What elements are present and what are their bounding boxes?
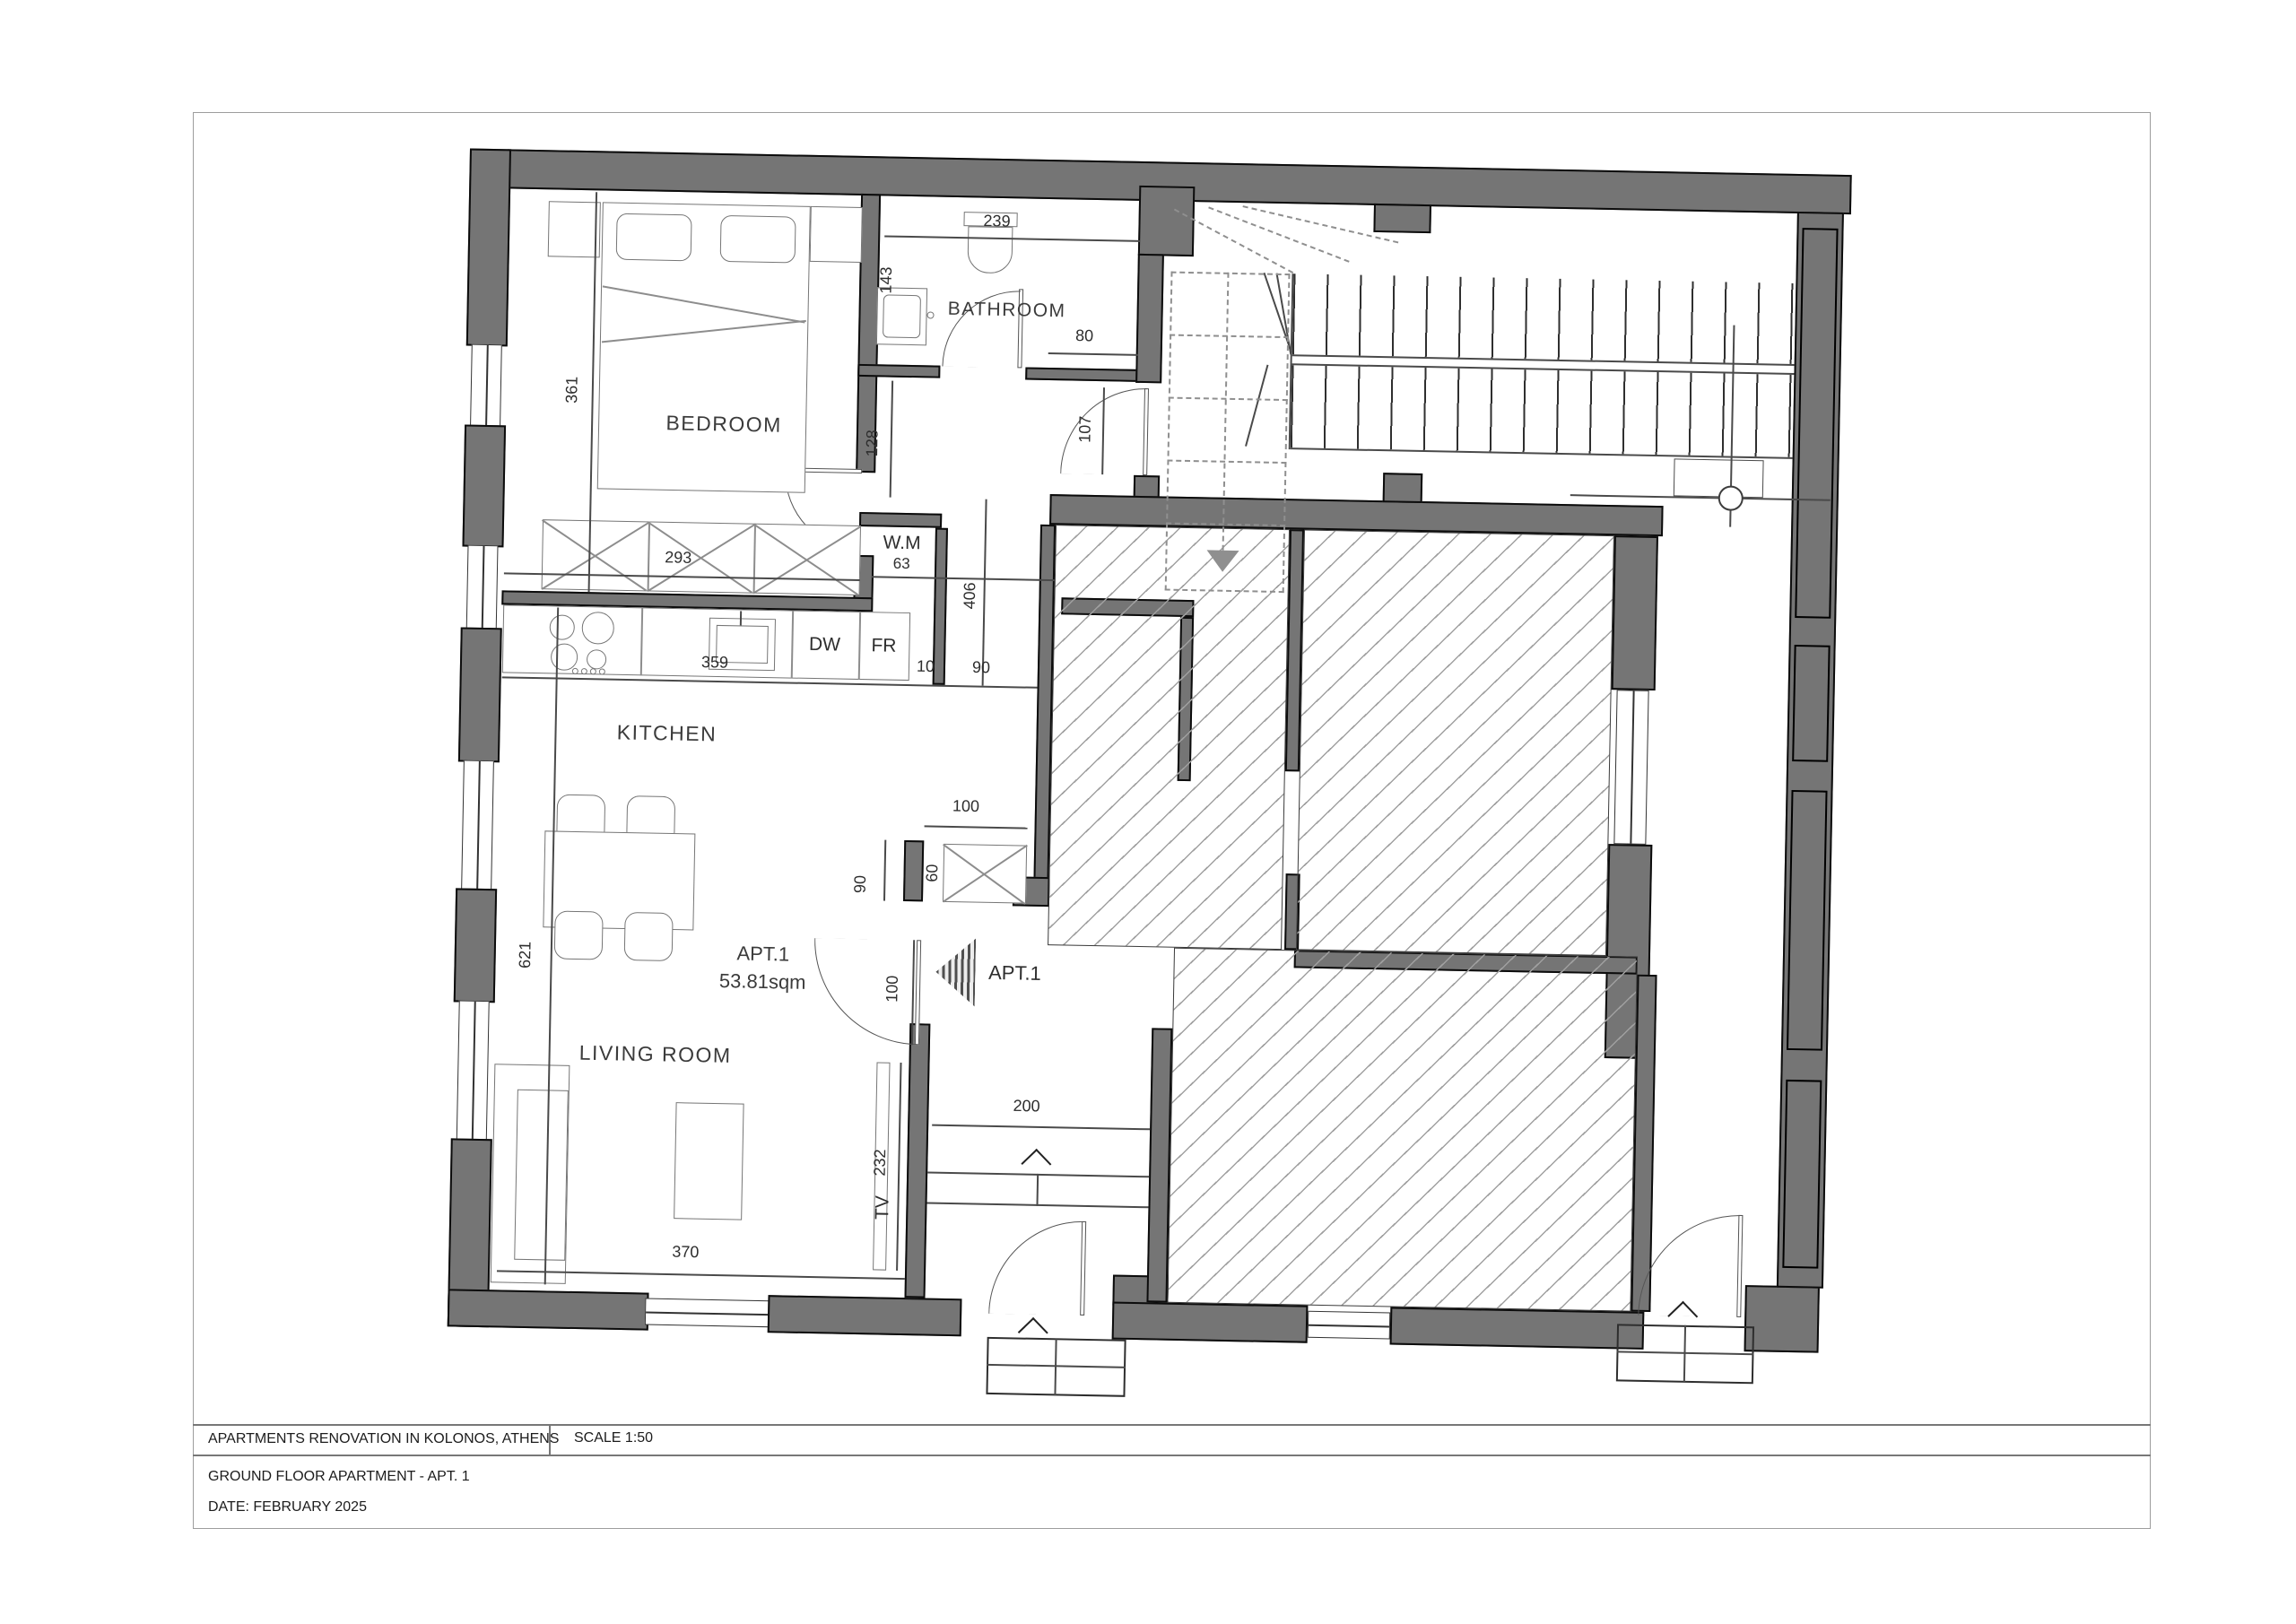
wall-left-segment — [466, 149, 511, 347]
wall-bottom-segment — [448, 1289, 649, 1330]
dimension-line — [932, 1125, 1150, 1130]
dim-kitchen-counter: 359 — [701, 653, 728, 673]
drawing-sheet: DW FR W.M 63 APT.1 — [0, 0, 2296, 1624]
apartment-name: APT.1 — [736, 942, 789, 966]
dim-living-width: 370 — [672, 1243, 699, 1263]
dim-closet-depth: 60 — [923, 864, 942, 881]
wall-wm-right — [933, 528, 948, 685]
wall-bottom-segment — [1390, 1307, 1645, 1349]
pillow — [720, 215, 796, 264]
dim-bathroom-sink: 143 — [876, 266, 896, 293]
dim-stair-door: 107 — [1075, 416, 1095, 443]
cooktop-knob — [581, 668, 587, 674]
dim-tv-wall: 232 — [871, 1149, 891, 1176]
wall-closet-stub — [903, 840, 924, 901]
wall-left-segment — [458, 627, 502, 762]
toilet-bowl — [967, 226, 1013, 274]
dimension-line — [872, 576, 1055, 580]
dim-wardrobe: 293 — [665, 548, 691, 568]
door-arc-entrance — [988, 1220, 1084, 1316]
wall-bathroom-stair — [1135, 254, 1164, 384]
wall-right-panel — [1795, 228, 1838, 619]
hatch-area — [1296, 529, 1614, 956]
sofa-seat — [514, 1090, 569, 1261]
tv-label: TV — [872, 1195, 894, 1220]
dim-kitchen-opening: 90 — [972, 658, 990, 677]
washing-machine-label: W.M — [883, 532, 920, 554]
dim-wall-stub: 10 — [917, 657, 935, 676]
wall-stub — [1134, 475, 1160, 499]
stairs-down-arrow — [1206, 550, 1239, 572]
wall-right-panel — [1787, 790, 1828, 1051]
dimension-line — [896, 1063, 901, 1271]
nightstand — [810, 206, 863, 263]
coffee-table — [674, 1102, 744, 1220]
apartment-area: 53.81sqm — [719, 969, 806, 994]
dim-hall-width: 128 — [863, 430, 883, 456]
room-label-kitchen: KITCHEN — [617, 720, 717, 746]
dim-corridor-opening: 90 — [851, 875, 870, 893]
fridge-label: FR — [871, 635, 896, 657]
stairs-flight-upper — [1292, 274, 1796, 364]
cooktop-knob — [590, 668, 596, 674]
window-living-bottom — [645, 1298, 770, 1328]
dishwasher-label: DW — [809, 634, 840, 656]
room-label-living: LIVING ROOM — [578, 1041, 731, 1068]
dim-vestibule-width: 200 — [1013, 1097, 1039, 1116]
entry-apartment-label: APT.1 — [988, 961, 1041, 986]
dim-living-kitchen-depth: 621 — [516, 942, 535, 968]
dimension-line — [890, 381, 893, 498]
pillow — [616, 213, 692, 262]
stairs-flight-lower — [1291, 365, 1795, 457]
wall-vestibule-left-tv — [904, 1023, 930, 1298]
dim-bathroom-width: 239 — [983, 212, 1010, 231]
threshold-line — [1036, 1174, 1039, 1206]
wall-right-panel — [1792, 645, 1830, 762]
dim-bedroom-depth: 361 — [562, 377, 582, 404]
floor-plan: DW FR W.M 63 APT.1 — [0, 0, 2296, 1624]
wall-bottom-segment — [768, 1295, 962, 1336]
dim-apartment-door: 100 — [883, 976, 902, 1003]
dining-chair — [624, 912, 674, 961]
column-marker-icon — [1718, 485, 1744, 511]
washbasin-tap — [926, 311, 934, 318]
dim-closet-length: 100 — [952, 797, 979, 817]
window-kitchen-left — [461, 760, 494, 891]
scale-label: SCALE 1:50 — [574, 1430, 653, 1446]
entry-arrow-icon — [935, 938, 976, 1007]
window-hatch-bottom — [1308, 1311, 1391, 1340]
dimension-line — [502, 676, 1038, 688]
kitchen-tap — [740, 611, 742, 625]
wall-bathroom-stair-thick — [1138, 186, 1195, 256]
hatch-area — [1167, 948, 1638, 1312]
washbasin-inner — [883, 294, 921, 338]
dimension-line — [883, 840, 886, 901]
dimension-line — [925, 825, 1028, 829]
door-arc-entrance2 — [1638, 1213, 1742, 1317]
dim-corridor-length: 406 — [961, 582, 980, 609]
date-label: DATE: FEBRUARY 2025 — [208, 1499, 367, 1515]
dining-chair — [554, 911, 604, 960]
window-hatch-right — [1613, 690, 1648, 845]
window-left — [466, 545, 499, 630]
window-living-left — [457, 1000, 490, 1141]
wall-left-segment — [454, 888, 497, 1003]
titleblock-line — [193, 1424, 2151, 1426]
wall-bottom-segment — [1112, 1302, 1309, 1343]
wall-bathroom-bottom — [1025, 367, 1137, 381]
wall-hatch-right — [1612, 535, 1658, 690]
window-bedroom-left — [470, 344, 502, 428]
titleblock-line — [193, 1455, 2151, 1456]
wall-pilaster — [1373, 204, 1431, 233]
room-label-bathroom: BATHROOM — [948, 299, 1066, 323]
wall-bottom-right-corner — [1744, 1285, 1820, 1353]
drawing-title: GROUND FLOOR APARTMENT - APT. 1 — [208, 1469, 470, 1485]
wall-bathroom-bottom — [857, 364, 940, 378]
cooktop-knob — [599, 668, 605, 674]
door-arc-apartment — [813, 938, 919, 1045]
wall-wm-top — [859, 512, 942, 528]
room-label-bedroom: BEDROOM — [665, 411, 782, 437]
project-title: APARTMENTS RENOVATION IN KOLONOS, ATHENS — [208, 1431, 559, 1447]
wall-right-panel — [1782, 1080, 1822, 1269]
dimension-line — [1048, 352, 1138, 355]
washing-machine-width: 63 — [893, 555, 910, 573]
nightstand — [548, 201, 601, 257]
wall-pilaster — [1383, 473, 1423, 503]
dim-bathroom-opening: 80 — [1075, 326, 1093, 345]
wall-left-segment — [462, 424, 506, 547]
